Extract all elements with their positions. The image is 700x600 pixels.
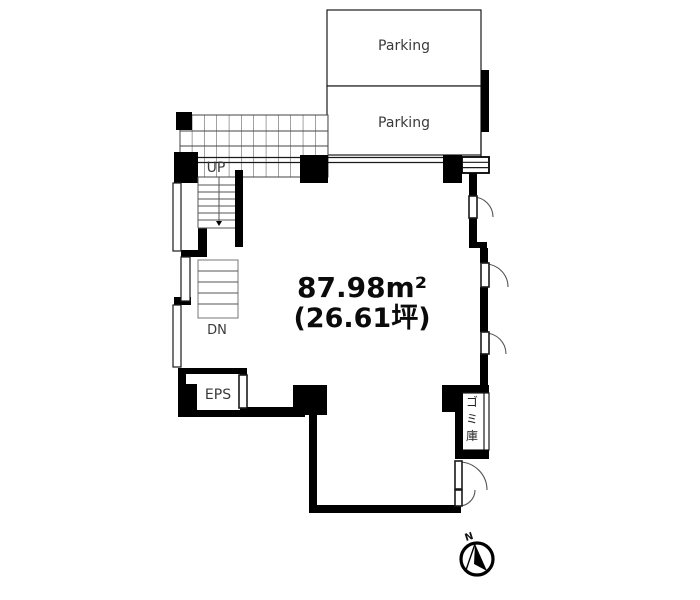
stairs-upper xyxy=(198,177,235,228)
left-wall-elbow1-horizontal xyxy=(181,250,207,257)
dn-stairs-outline xyxy=(198,260,238,318)
parking-area: Parking Parking xyxy=(327,10,489,157)
lower-left-wall xyxy=(309,415,317,513)
left-wall-seg1 xyxy=(173,183,181,251)
up-label: UP xyxy=(207,160,226,176)
left-wall-seg3 xyxy=(173,305,181,367)
stairwell-center-wall xyxy=(235,170,243,247)
entrance-door-upper-leaf xyxy=(455,461,462,489)
garbage-label-char1: ゴ xyxy=(466,394,478,409)
floor-plan-drawing: Parking Parking xyxy=(0,0,700,600)
pillar-top-left xyxy=(174,152,198,183)
door3-leaf xyxy=(481,332,489,354)
eps-label: EPS xyxy=(205,387,231,403)
window-frame xyxy=(462,157,489,173)
right-wall-seg3 xyxy=(480,248,488,263)
eps-bottom-wall-extension xyxy=(247,407,305,417)
garbage-top-wall xyxy=(455,385,489,393)
right-wall-seg1 xyxy=(469,170,477,197)
entrance-door-lower-leaf xyxy=(455,490,462,506)
top-right-window xyxy=(462,157,489,173)
eps-corner-notch xyxy=(186,384,197,410)
parking-upper-label: Parking xyxy=(378,38,430,54)
garbage-label-char3: 庫 xyxy=(466,429,478,443)
right-wall-jog xyxy=(469,242,487,248)
area-tsubo-label: (26.61坪) xyxy=(293,303,430,334)
right-wall-seg5 xyxy=(480,353,488,385)
eps-door-leaf xyxy=(239,375,247,408)
door1-leaf xyxy=(469,196,477,218)
pillar-top-center xyxy=(300,155,328,183)
right-wall-seg4 xyxy=(480,287,488,332)
stair-direction-arrow xyxy=(216,221,222,226)
left-wall xyxy=(173,183,190,367)
pillar-top-right xyxy=(443,155,462,183)
left-wall-seg2 xyxy=(181,257,190,301)
entrance-door-upper-arc xyxy=(459,462,487,490)
garbage-left-wall xyxy=(455,393,463,450)
garbage-label-char2: ミ xyxy=(466,412,478,426)
door2-leaf xyxy=(481,263,489,287)
parking-right-wall-block xyxy=(481,70,489,132)
floor-plan: Parking Parking xyxy=(0,0,700,600)
compass: N xyxy=(461,531,493,575)
dn-label: DN xyxy=(207,323,227,338)
bottom-wall xyxy=(309,505,461,513)
stairs-down xyxy=(198,260,238,318)
garbage-room: ゴ ミ 庫 xyxy=(455,385,489,459)
parking-lower-label: Parking xyxy=(378,115,430,131)
eps-shaft xyxy=(178,368,305,417)
area-sqm-label: 87.98m² xyxy=(297,271,427,304)
right-wall-seg2 xyxy=(469,218,477,242)
garbage-bottom-wall xyxy=(455,450,489,459)
pillar-top-left-small xyxy=(176,112,192,130)
